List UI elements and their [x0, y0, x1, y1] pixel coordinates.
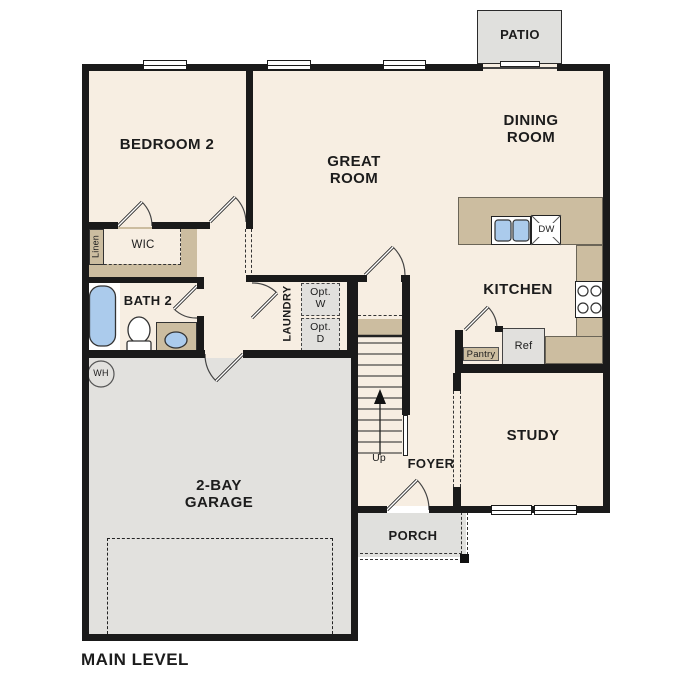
window-great-room-1 [267, 60, 311, 70]
hall-cased-opening [245, 229, 252, 273]
vanity-cabinet [156, 322, 197, 353]
wall-garage-bottom [82, 634, 358, 641]
floor-plan: PATIO BEDROOM 2 GREAT ROOM DINING ROOM K… [0, 0, 687, 687]
wall-foyer-study-a [453, 373, 461, 391]
up-label: Up [366, 452, 392, 464]
window-great-room-2 [383, 60, 426, 70]
study-label: STUDY [473, 427, 593, 444]
wall-bottom-a [351, 506, 387, 513]
linen-label: Linen [91, 230, 102, 264]
wall-bedroom-right [246, 64, 253, 229]
stair-landing [358, 319, 402, 336]
porch-corner-post [460, 554, 469, 563]
window-study-2 [534, 505, 577, 515]
porch-label: PORCH [368, 528, 458, 543]
great-room-line1: GREAT [295, 153, 413, 170]
wall-foyer-study-b [453, 487, 461, 506]
study-cased-opening [453, 391, 461, 487]
wall-right [603, 64, 610, 513]
wall-pantry-left [455, 330, 463, 364]
dining-room-line2: ROOM [472, 129, 590, 146]
garage-door-outline [107, 538, 333, 634]
opt-w-line1: Opt. [301, 286, 340, 298]
refrigerator-label: Ref [502, 340, 545, 353]
sink-cabinet [491, 216, 531, 245]
wall-garage-right [351, 358, 358, 641]
plan-title: MAIN LEVEL [81, 650, 251, 669]
wall-bath-top [82, 277, 204, 283]
wall-garage-top-a [82, 350, 205, 358]
stair-cut-line [358, 315, 402, 317]
kitchen-counter-bottom [545, 336, 603, 364]
pantry-label: Pantry [463, 347, 499, 361]
great-room-label: GREAT ROOM [295, 153, 413, 187]
wall-pantry-stub [495, 326, 503, 332]
wall-laundry-top [246, 275, 367, 282]
garage-line2: GARAGE [159, 494, 279, 511]
tub-niche [89, 283, 120, 350]
patio-sliding-door [500, 61, 540, 67]
dining-room-label: DINING ROOM [472, 112, 590, 146]
laundry-label: LAUNDRY [282, 279, 295, 349]
wall-kitchen-study [455, 364, 610, 373]
wall-stair-right [402, 275, 410, 415]
dishwasher-label: DW [534, 223, 559, 237]
opt-d-line1: Opt. [301, 321, 340, 333]
bath2-label: BATH 2 [120, 293, 176, 308]
opt-washer-label: Opt. W [301, 286, 340, 310]
opt-w-line2: W [301, 298, 340, 310]
wall-bedroom-bottom-a [89, 222, 118, 229]
wall-bedroom-bottom-b [152, 222, 210, 229]
wall-garage-top-b [243, 350, 358, 358]
window-study-1 [491, 505, 532, 515]
window-bedroom2 [143, 60, 187, 70]
dining-room-line1: DINING [472, 112, 590, 129]
bedroom2-label: BEDROOM 2 [88, 136, 246, 153]
garage-line1: 2-BAY [159, 477, 279, 494]
patio-label: PATIO [478, 27, 562, 42]
wic-label: WIC [118, 239, 168, 252]
patio-door-track [483, 67, 557, 69]
great-room-line2: ROOM [295, 170, 413, 187]
kitchen-label: KITCHEN [458, 281, 578, 298]
water-heater-label: WH [88, 368, 114, 379]
wall-bath-right-a [197, 283, 204, 289]
wall-laundry-stair [347, 277, 358, 358]
foyer-label: FOYER [398, 456, 464, 471]
garage-label: 2-BAY GARAGE [159, 477, 279, 511]
opt-d-line2: D [301, 333, 340, 345]
stove-box [575, 281, 603, 318]
opt-dryer-label: Opt. D [301, 321, 340, 345]
stair-handrail [403, 415, 408, 456]
